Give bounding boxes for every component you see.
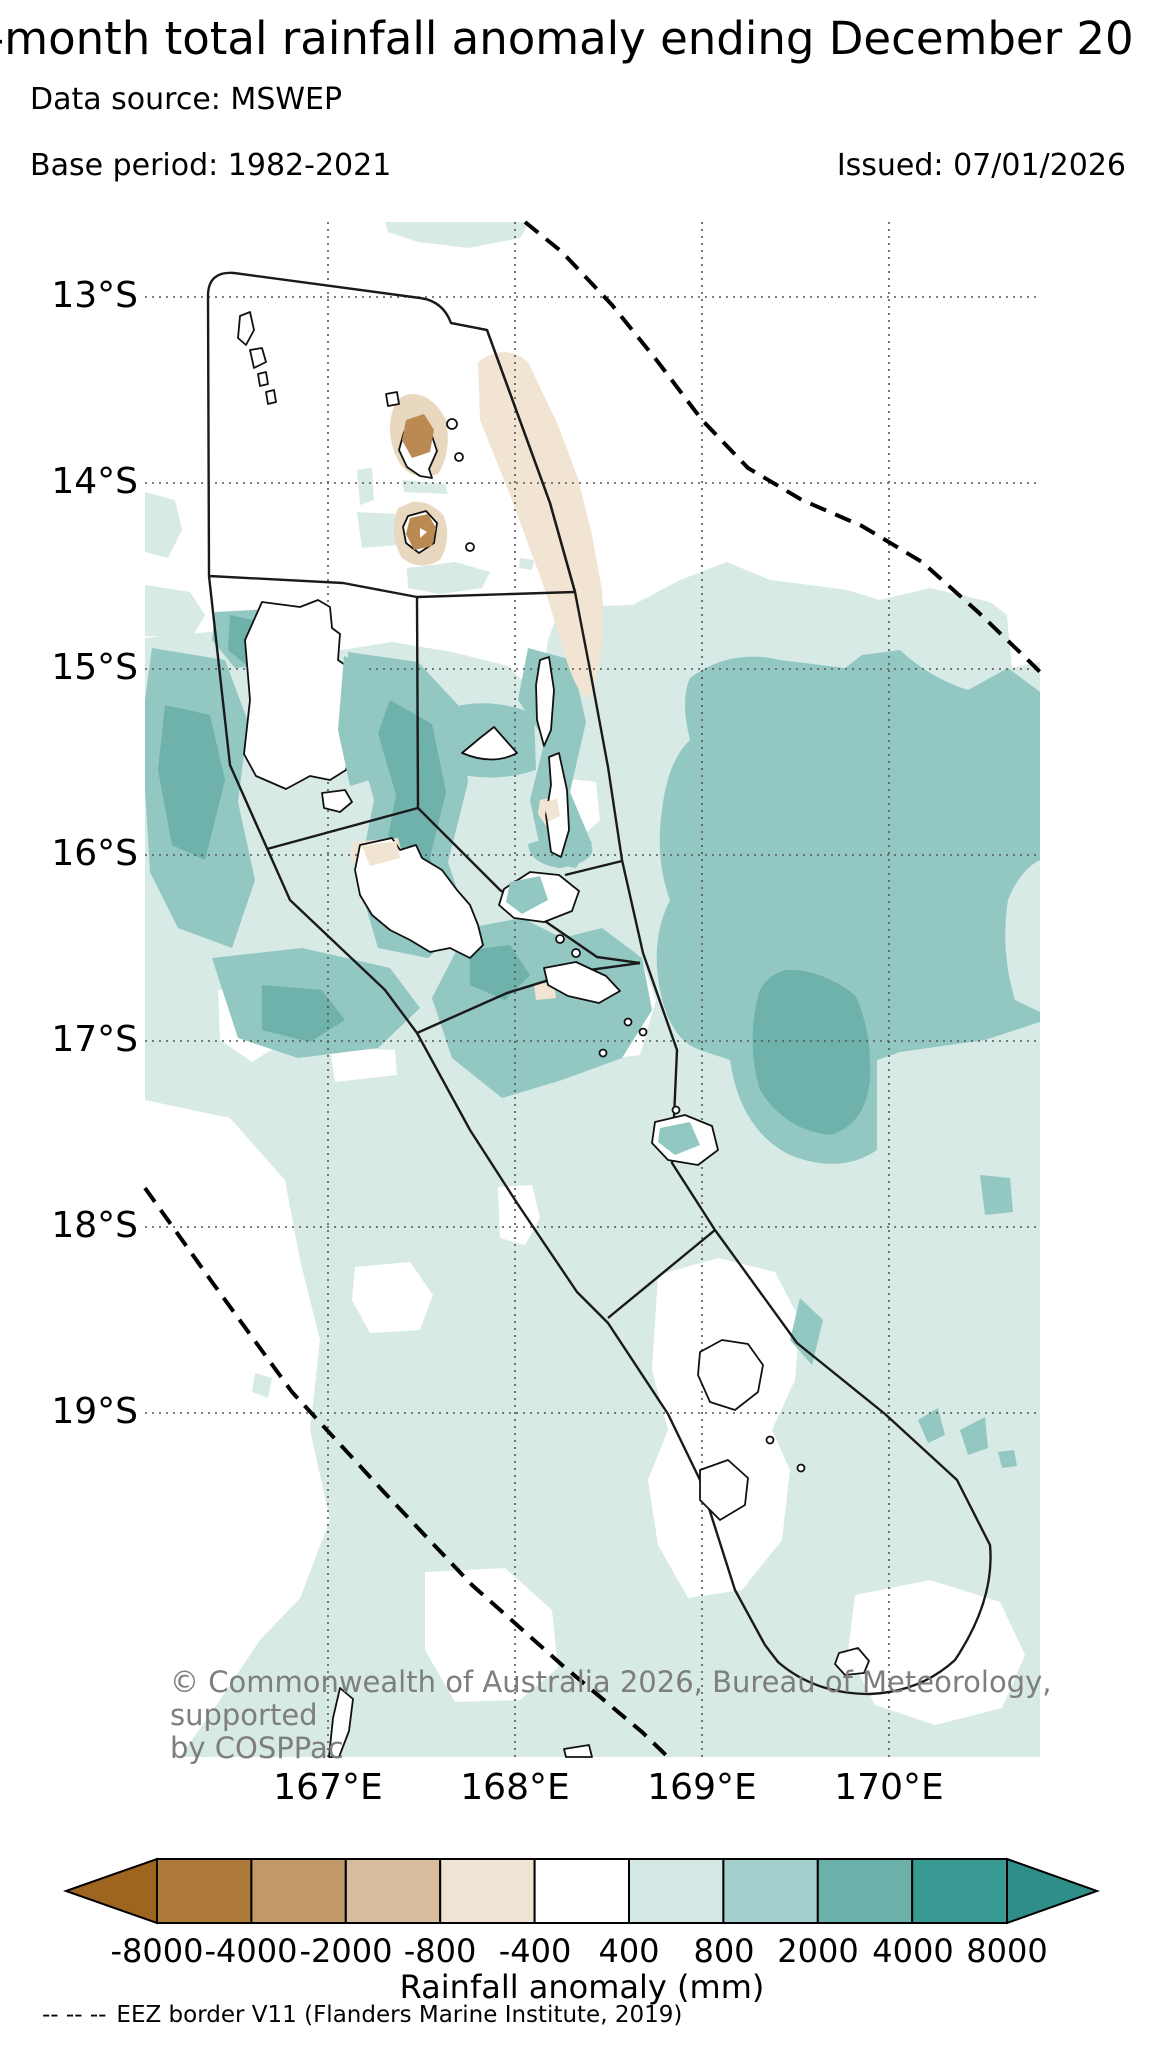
island-torres-1	[238, 312, 254, 345]
colorbar	[66, 1859, 1097, 1923]
colorbar-seg-4	[440, 1859, 534, 1923]
island-mere-lava	[466, 543, 474, 551]
boundary-vertical-divider	[417, 597, 418, 808]
lon-label-169e: 169°E	[632, 1767, 772, 1808]
island-nguna	[673, 1107, 680, 1114]
colorbar-seg-9	[912, 1859, 1007, 1923]
lat-label-16s: 16°S	[16, 833, 138, 874]
lat-label-17s: 17°S	[16, 1019, 138, 1060]
lon-label-170e: 170°E	[819, 1767, 959, 1808]
colorbar-seg-7	[723, 1859, 817, 1923]
island-lopevi	[572, 949, 580, 957]
contour-mid-diamond5	[980, 1175, 1013, 1215]
lat-label-18s: 18°S	[16, 1205, 138, 1246]
island-mota-lava	[455, 453, 463, 461]
island-futuna	[798, 1465, 805, 1472]
colorbar-seg-6	[629, 1859, 723, 1923]
island-aniwa	[767, 1437, 774, 1444]
lat-label-14s: 14°S	[16, 461, 138, 502]
copyright-line2: by COSPPac	[170, 1732, 1150, 1765]
contour-light-topstrip	[385, 222, 530, 248]
island-tongoa	[625, 1019, 632, 1026]
island-torres-4	[266, 390, 276, 404]
copyright-note: © Commonwealth of Australia 2026, Bureau…	[170, 1666, 1150, 1765]
lon-label-168e: 168°E	[445, 1767, 585, 1808]
contour-light-banks2	[402, 480, 448, 494]
colorbar-seg-2	[251, 1859, 345, 1923]
contour-light-banks1	[357, 468, 374, 505]
colorbar-seg-5	[535, 1859, 629, 1923]
colorbar-seg-1	[157, 1859, 251, 1923]
island-torres-3	[258, 372, 268, 386]
island-ureparapara	[386, 392, 399, 406]
contour-light-dot	[519, 558, 534, 570]
island-torres-2	[250, 348, 266, 368]
island-mota	[447, 419, 457, 429]
contour-light-banks4	[407, 562, 490, 594]
island-emae	[640, 1029, 647, 1036]
colorbar-title: Rainfall anomaly (mm)	[232, 1968, 932, 2006]
lat-label-19s: 19°S	[16, 1391, 138, 1432]
lon-label-167e: 167°E	[258, 1767, 398, 1808]
colorbar-seg-8	[818, 1859, 912, 1923]
eez-dash-symbol: -- -- --	[42, 2002, 106, 2028]
colorbar-arrow-left	[66, 1859, 157, 1923]
island-shepherd	[600, 1050, 607, 1057]
contour-light-west2	[145, 585, 205, 638]
cbar-tick-9: 8000	[951, 1932, 1063, 1970]
copyright-line1: © Commonwealth of Australia 2026, Bureau…	[170, 1666, 1150, 1732]
eez-legend-text: EEZ border V11 (Flanders Marine Institut…	[116, 2002, 682, 2028]
colorbar-arrow-right	[1007, 1859, 1097, 1923]
contour-tan-strip	[478, 352, 603, 700]
island-paama	[556, 935, 564, 943]
contour-light-west1	[145, 492, 182, 558]
rainfall-anomaly-report: -month total rainfall anomaly ending Dec…	[0, 0, 1150, 2046]
contour-light-banks3	[357, 512, 398, 548]
lat-label-15s: 15°S	[16, 647, 138, 688]
colorbar-seg-3	[346, 1859, 440, 1923]
lat-label-13s: 13°S	[16, 275, 138, 316]
eez-legend: -- -- -- EEZ border V11 (Flanders Marine…	[42, 2002, 682, 2028]
